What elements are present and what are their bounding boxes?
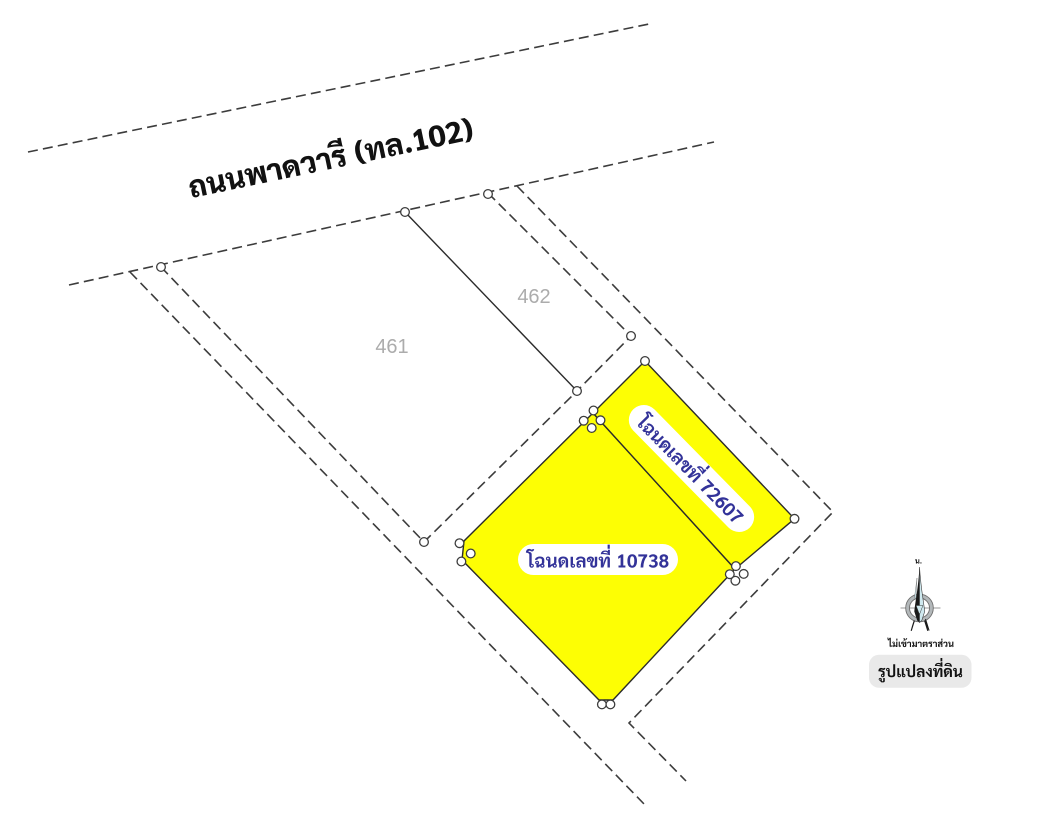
svg-text:461: 461 — [375, 336, 408, 358]
svg-text:462: 462 — [517, 286, 550, 308]
